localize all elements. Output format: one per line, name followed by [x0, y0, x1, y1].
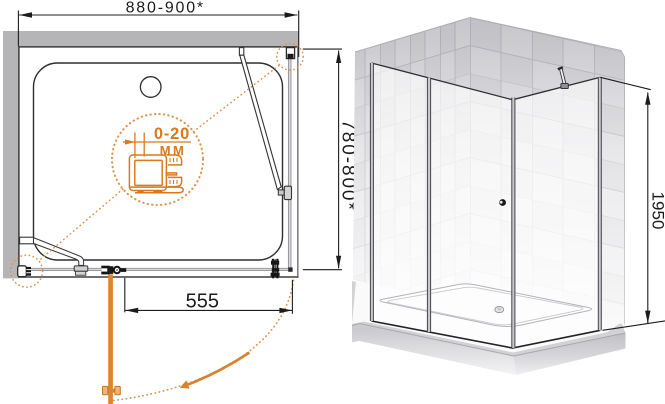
svg-text:555: 555 — [186, 291, 219, 313]
svg-text:880-900*: 880-900* — [126, 0, 205, 16]
svg-text:1950: 1950 — [649, 192, 665, 230]
svg-text:0-20: 0-20 — [154, 125, 190, 143]
